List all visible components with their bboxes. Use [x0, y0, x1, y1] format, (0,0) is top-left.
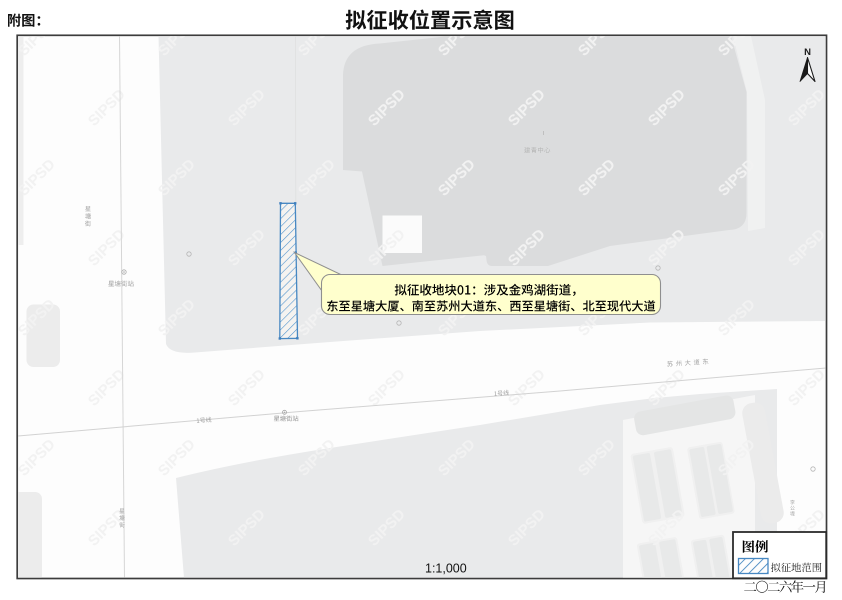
svg-text:N: N: [804, 47, 811, 58]
svg-text:1:1,000: 1:1,000: [425, 562, 467, 576]
